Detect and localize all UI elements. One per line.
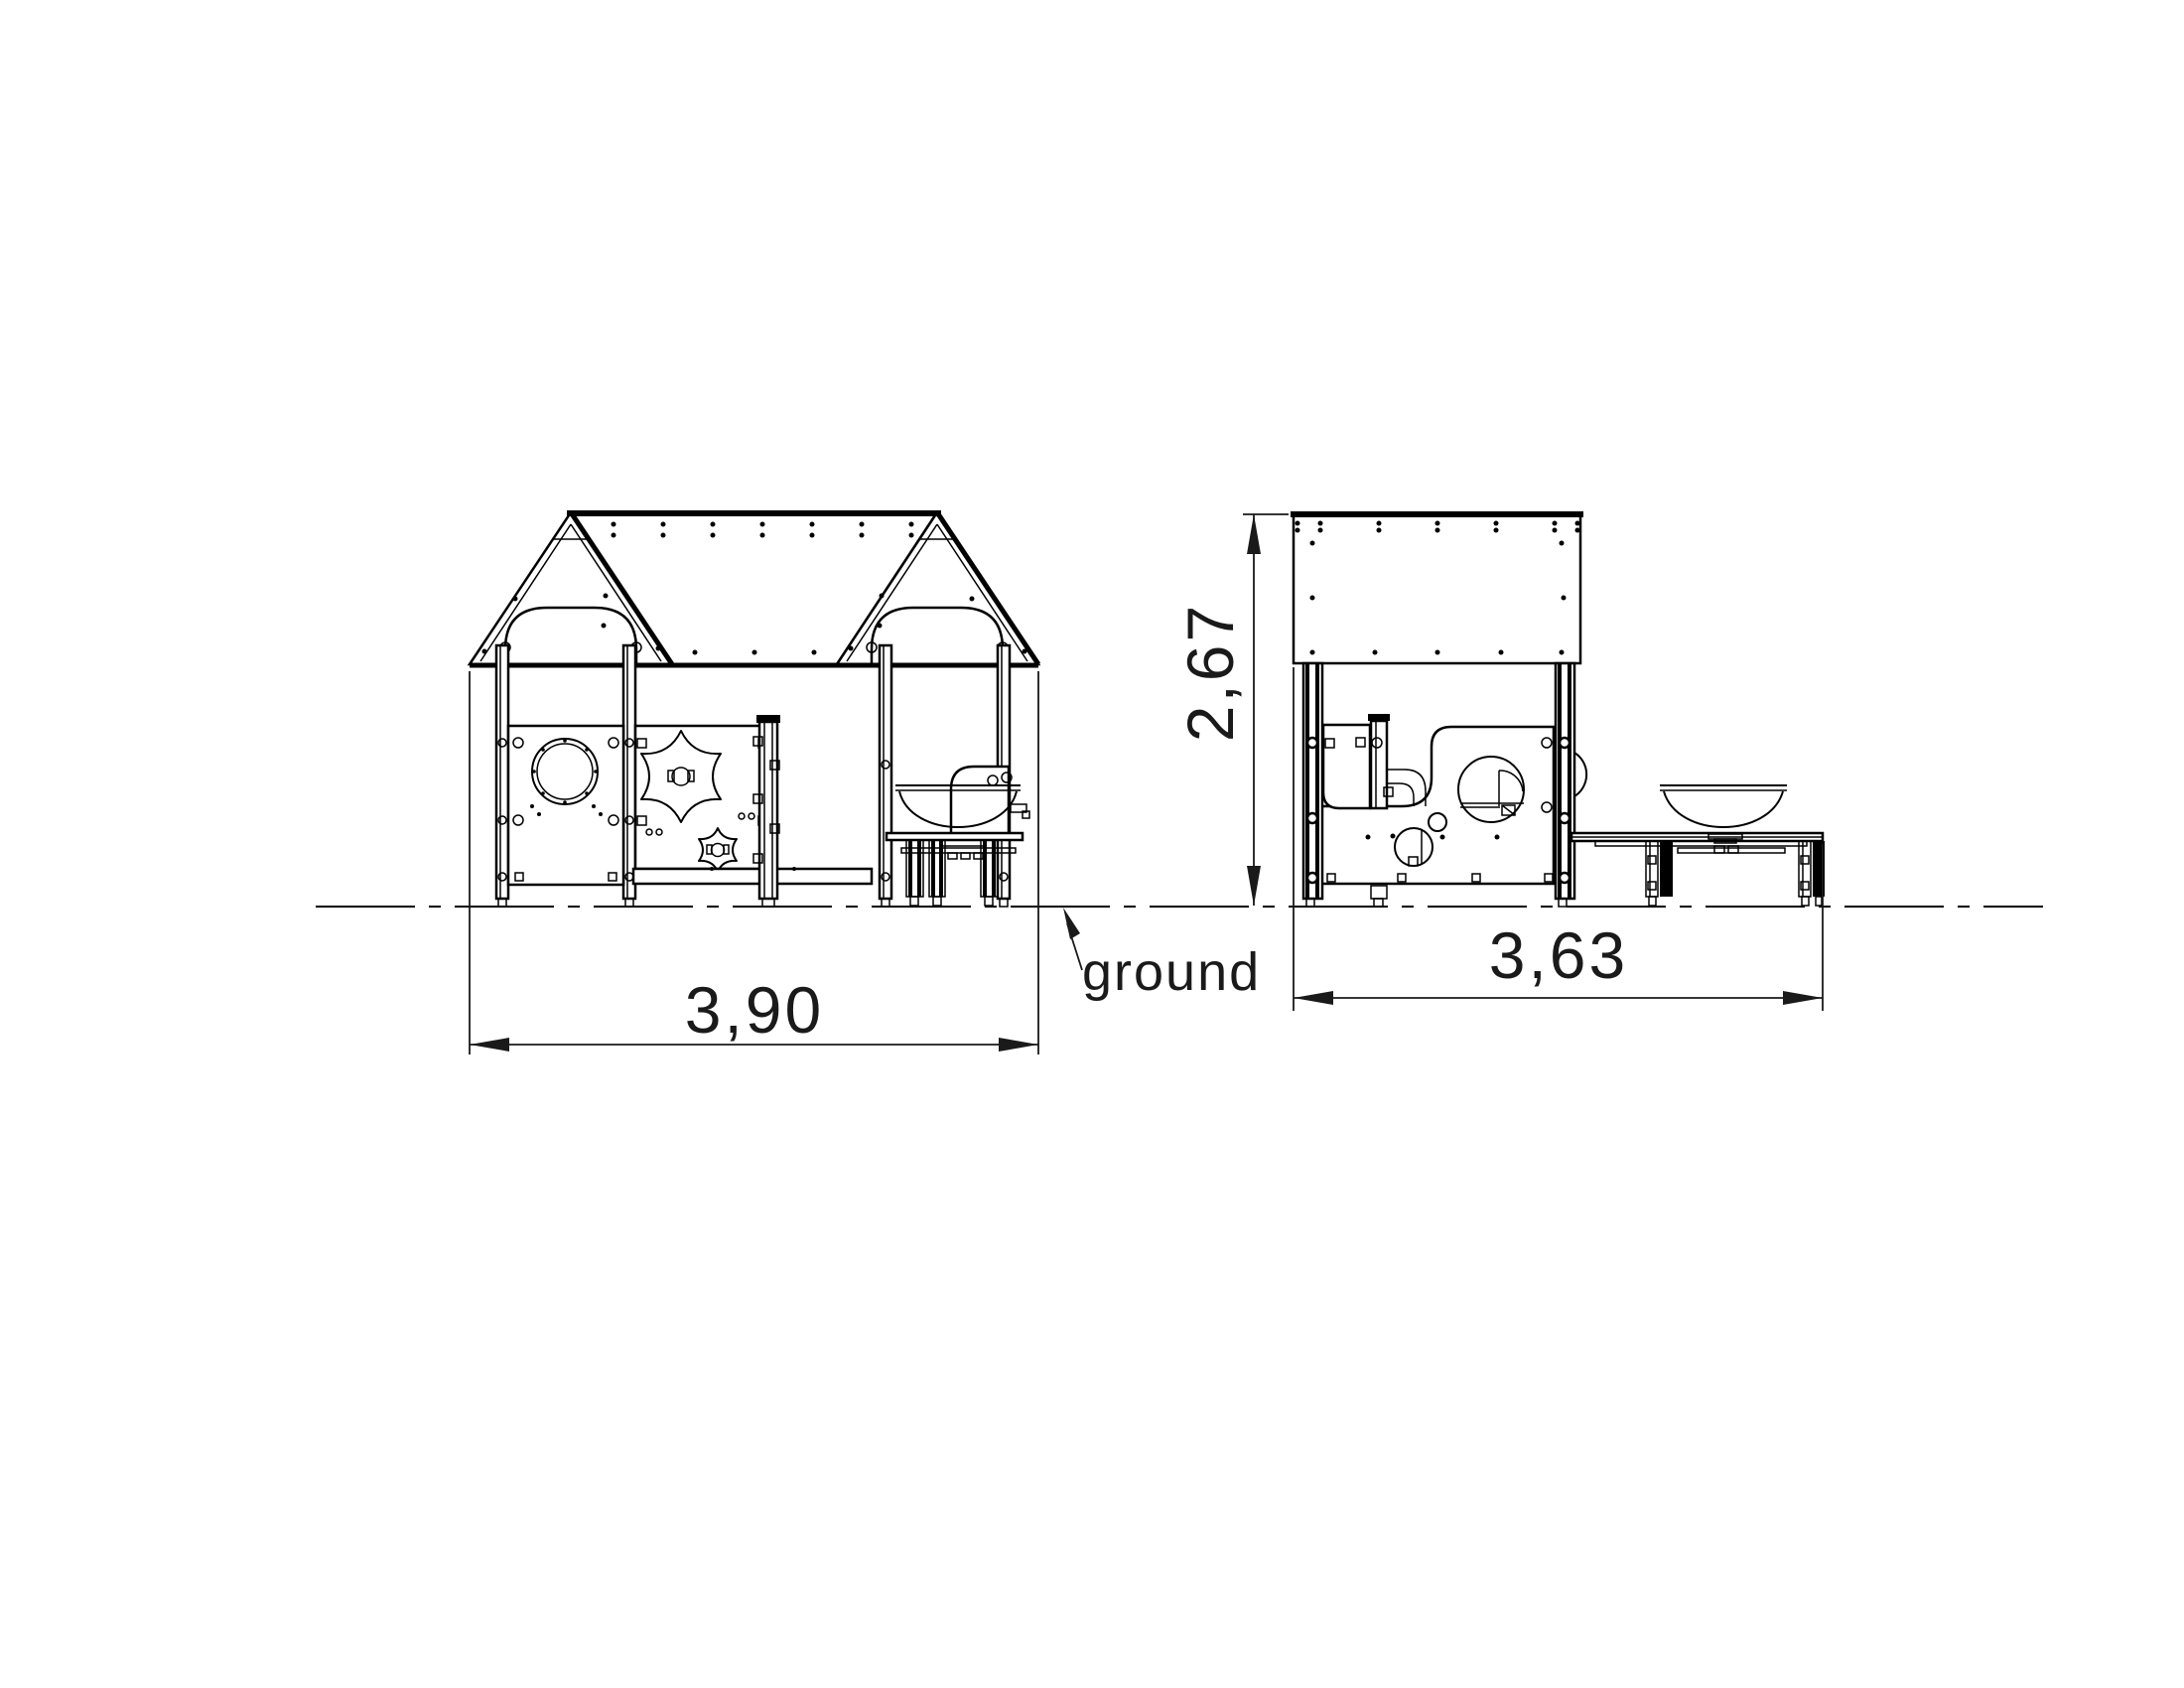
front-elevation-view xyxy=(470,512,1038,907)
arrowhead-right xyxy=(999,1038,1038,1052)
side-depth-value: 3,63 xyxy=(1489,918,1628,992)
technical-drawing-canvas: 3,90 2,67 3,63 ground xyxy=(0,0,2184,1688)
ground-label: ground xyxy=(1082,942,1261,1002)
roof-face-panel xyxy=(571,512,937,664)
post xyxy=(496,645,508,899)
leg-foot xyxy=(985,897,993,906)
leg-foot xyxy=(933,897,941,906)
water-bowl-side xyxy=(1664,791,1783,827)
arrowhead-bottom xyxy=(1247,866,1261,906)
flower-panel xyxy=(635,726,769,872)
post xyxy=(880,645,891,899)
table-leg xyxy=(1799,841,1825,897)
leg-foot xyxy=(1802,897,1809,906)
inner-post-cap xyxy=(1368,714,1390,721)
table-leg xyxy=(1646,841,1673,897)
front-width-value: 3,90 xyxy=(685,973,824,1047)
table-rail xyxy=(1595,841,1807,846)
arrowhead-left xyxy=(470,1038,509,1052)
side-elevation-view xyxy=(1291,514,1825,907)
porthole-edge-arc xyxy=(1574,753,1586,796)
ground-annotation: ground xyxy=(1063,908,1261,1002)
arrowhead-top xyxy=(1247,514,1261,554)
panel xyxy=(508,726,623,885)
bench-board xyxy=(633,869,872,884)
bench xyxy=(633,867,872,884)
post xyxy=(1556,663,1574,907)
height-value: 2,67 xyxy=(1173,603,1247,742)
post xyxy=(1303,663,1322,907)
inner-post-foot xyxy=(1374,899,1383,907)
post xyxy=(623,645,635,899)
leg-foot xyxy=(910,897,918,906)
dimension-height: 2,67 xyxy=(1173,514,1289,906)
roof-side-panel xyxy=(1294,514,1580,663)
arrowhead-left xyxy=(1294,991,1333,1005)
ground-leader-arrowhead xyxy=(1063,908,1080,939)
rail-cap xyxy=(756,715,780,723)
rail-post xyxy=(759,722,777,899)
table-top xyxy=(887,833,1023,840)
leg-foot xyxy=(1816,897,1822,906)
leg-foot xyxy=(1649,897,1656,906)
arrowhead-right xyxy=(1783,991,1823,1005)
side-play-table xyxy=(1571,785,1825,906)
window-panel xyxy=(508,726,623,885)
